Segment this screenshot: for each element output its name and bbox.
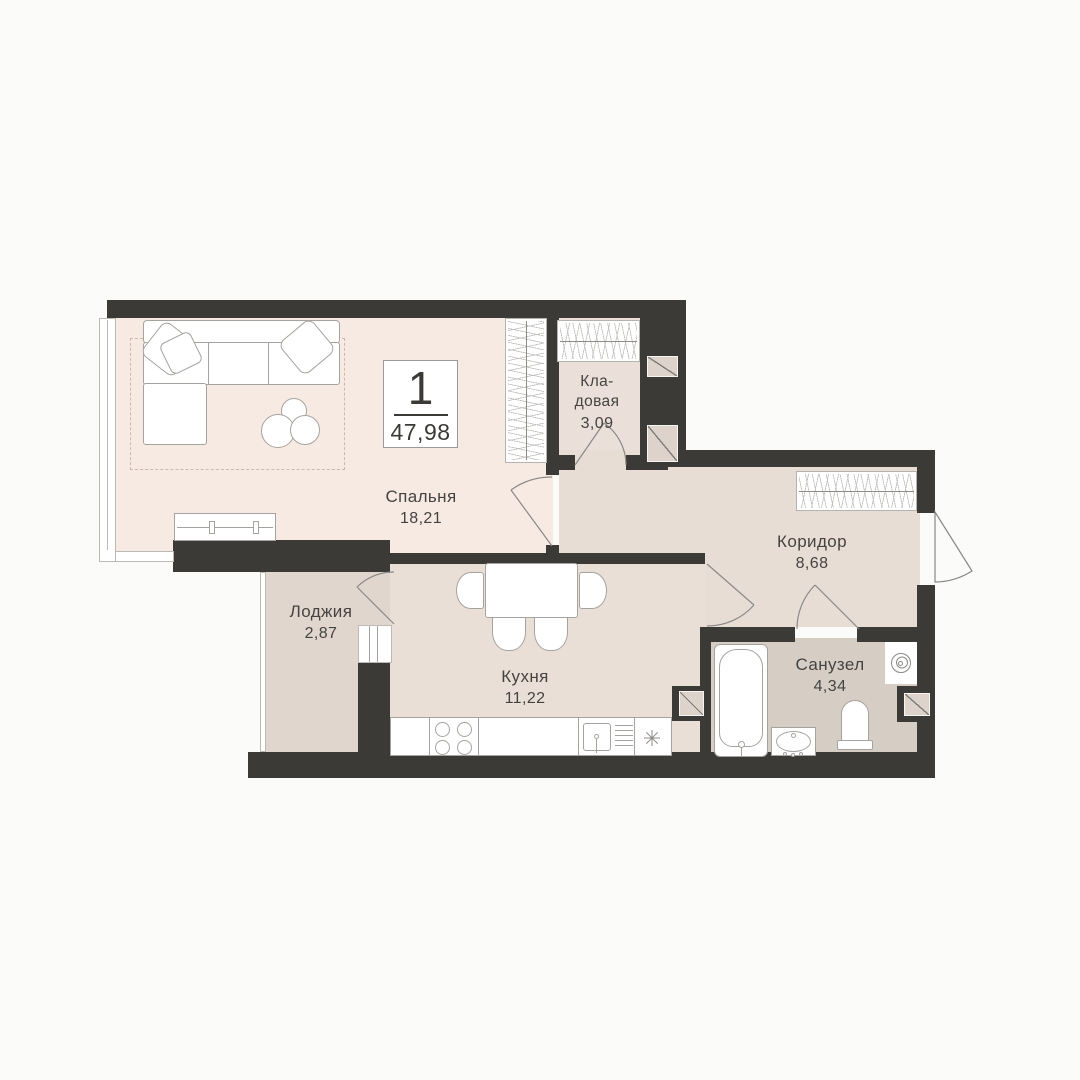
- fridge-asterisk-icon: [644, 730, 660, 746]
- room-label-kitchen: Кухня 11,22: [501, 666, 549, 710]
- room-area: 11,22: [501, 688, 549, 709]
- room-area: 3,09: [575, 413, 620, 434]
- room-area: 8,68: [777, 553, 847, 574]
- door-swing-loggia: [357, 572, 394, 624]
- room-name: Лоджия: [290, 601, 353, 623]
- room-name: Коридор: [777, 531, 847, 553]
- room-label-loggia: Лоджия 2,87: [290, 601, 353, 645]
- room-name: Санузел: [795, 654, 864, 676]
- room-name: Кла-: [575, 372, 620, 392]
- apartment-rooms-badge: 1: [384, 363, 457, 413]
- floor-plan: 1 47,98 Спальня 18,21 Кла- довая 3,09 Ко…: [0, 0, 1080, 1080]
- washing-machine-spiral-icon: [892, 654, 911, 673]
- room-label-bedroom: Спальня 18,21: [385, 486, 456, 530]
- apartment-info-box: 1 47,98: [383, 360, 458, 448]
- room-name: Спальня: [385, 486, 456, 508]
- room-area: 2,87: [290, 623, 353, 644]
- apartment-total-area: 47,98: [384, 419, 457, 446]
- door-swing-bedroom: [511, 477, 552, 546]
- door-swing-kitchen: [707, 564, 754, 626]
- info-box-divider: [394, 414, 448, 416]
- room-name: довая: [575, 392, 620, 412]
- room-label-storage: Кла- довая 3,09: [575, 372, 620, 434]
- doors-and-icons-overlay: [0, 0, 1080, 1080]
- room-label-bathroom: Санузел 4,34: [795, 654, 864, 698]
- dining-table: [485, 563, 578, 618]
- room-name: Кухня: [501, 666, 549, 688]
- room-area: 18,21: [385, 508, 456, 529]
- entrance-door-swing: [935, 512, 972, 582]
- door-swing-bathroom: [797, 585, 859, 629]
- room-label-corridor: Коридор 8,68: [777, 531, 847, 575]
- room-area: 4,34: [795, 676, 864, 697]
